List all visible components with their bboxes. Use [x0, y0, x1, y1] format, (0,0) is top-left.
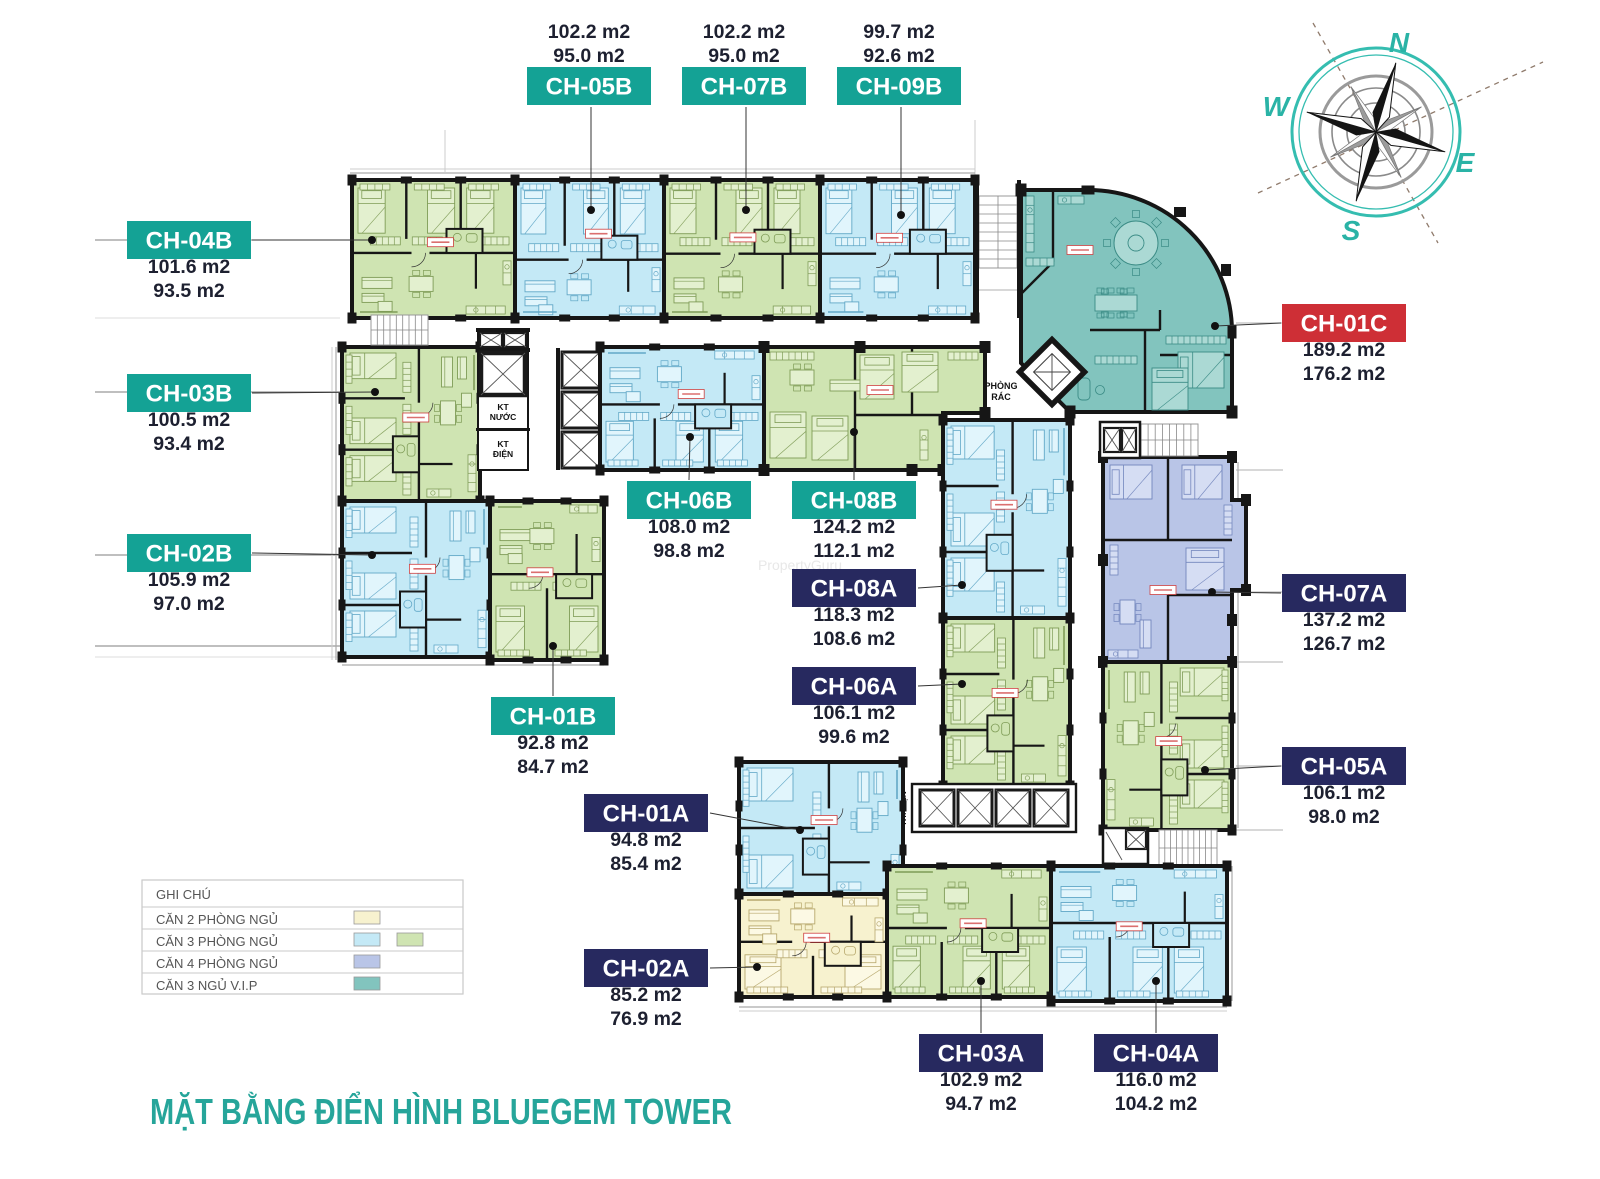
svg-text:CH-02A: CH-02A [603, 956, 690, 983]
svg-text:98.0 m2: 98.0 m2 [1308, 806, 1380, 828]
svg-text:101.6 m2: 101.6 m2 [148, 256, 231, 278]
svg-text:CH-01A: CH-01A [603, 801, 690, 828]
svg-text:CH-09B: CH-09B [856, 74, 943, 101]
svg-text:85.4 m2: 85.4 m2 [610, 853, 682, 875]
svg-text:CH-01B: CH-01B [510, 704, 597, 731]
svg-text:GHI CHÚ: GHI CHÚ [156, 887, 211, 902]
svg-text:NƯỚC: NƯỚC [490, 411, 517, 422]
svg-text:105.9 m2: 105.9 m2 [148, 569, 231, 591]
svg-text:RÁC: RÁC [991, 392, 1011, 402]
svg-text:CĂN 4 PHÒNG NGỦ: CĂN 4 PHÒNG NGỦ [156, 956, 278, 971]
svg-text:W: W [1263, 91, 1292, 122]
svg-text:ĐIỆN: ĐIỆN [493, 448, 513, 459]
svg-text:108.6 m2: 108.6 m2 [813, 628, 896, 650]
svg-text:95.0 m2: 95.0 m2 [553, 45, 625, 67]
svg-text:99.6 m2: 99.6 m2 [818, 726, 890, 748]
svg-text:99.7 m2: 99.7 m2 [863, 21, 935, 43]
svg-text:94.8 m2: 94.8 m2 [610, 829, 682, 851]
svg-text:CH-08A: CH-08A [811, 576, 898, 603]
svg-text:S: S [1342, 215, 1361, 246]
svg-text:KT: KT [497, 439, 509, 449]
svg-text:137.2 m2: 137.2 m2 [1303, 609, 1386, 631]
svg-text:KT: KT [497, 402, 509, 412]
svg-text:CH-08B: CH-08B [811, 488, 898, 515]
svg-text:76.9 m2: 76.9 m2 [610, 1008, 682, 1030]
svg-text:93.5 m2: 93.5 m2 [153, 280, 225, 302]
svg-text:102.9 m2: 102.9 m2 [940, 1069, 1023, 1091]
svg-text:106.1 m2: 106.1 m2 [813, 702, 896, 724]
svg-text:CH-01C: CH-01C [1301, 311, 1388, 338]
svg-text:98.8 m2: 98.8 m2 [653, 540, 725, 562]
svg-text:E: E [1456, 147, 1476, 178]
svg-text:124.2 m2: 124.2 m2 [813, 516, 896, 538]
svg-text:94.7 m2: 94.7 m2 [945, 1093, 1017, 1115]
svg-text:100.5 m2: 100.5 m2 [148, 409, 231, 431]
svg-text:102.2 m2: 102.2 m2 [703, 21, 786, 43]
svg-text:95.0 m2: 95.0 m2 [708, 45, 780, 67]
svg-text:MẶT BẰNG ĐIỂN HÌNH BLUEGEM TOW: MẶT BẰNG ĐIỂN HÌNH BLUEGEM TOWER [150, 1090, 732, 1132]
svg-text:CH-06A: CH-06A [811, 674, 898, 701]
svg-text:92.8 m2: 92.8 m2 [517, 732, 589, 754]
svg-text:CH-05A: CH-05A [1301, 754, 1388, 781]
svg-text:102.2 m2: 102.2 m2 [548, 21, 631, 43]
svg-text:CH-05B: CH-05B [546, 74, 633, 101]
svg-text:PHÒNG: PHÒNG [984, 380, 1017, 391]
svg-text:CH-02B: CH-02B [146, 541, 233, 568]
svg-text:93.4 m2: 93.4 m2 [153, 433, 225, 455]
svg-text:176.2 m2: 176.2 m2 [1303, 363, 1386, 385]
svg-text:112.1 m2: 112.1 m2 [813, 540, 894, 562]
svg-text:CH-07A: CH-07A [1301, 581, 1388, 608]
svg-text:126.7 m2: 126.7 m2 [1303, 633, 1386, 655]
svg-text:CH-04A: CH-04A [1113, 1041, 1200, 1068]
svg-text:84.7 m2: 84.7 m2 [517, 756, 589, 778]
svg-text:104.2 m2: 104.2 m2 [1115, 1093, 1198, 1115]
svg-text:189.2 m2: 189.2 m2 [1303, 339, 1386, 361]
svg-text:CH-03B: CH-03B [146, 381, 233, 408]
svg-text:106.1 m2: 106.1 m2 [1303, 782, 1386, 804]
svg-text:CĂN 2 PHÒNG NGỦ: CĂN 2 PHÒNG NGỦ [156, 912, 278, 927]
svg-text:CĂN 3 PHÒNG NGỦ: CĂN 3 PHÒNG NGỦ [156, 934, 278, 949]
svg-text:97.0 m2: 97.0 m2 [153, 593, 225, 615]
svg-text:CĂN 3 NGỦ V.I.P: CĂN 3 NGỦ V.I.P [156, 978, 257, 993]
svg-text:108.0 m2: 108.0 m2 [648, 516, 731, 538]
svg-text:CH-06B: CH-06B [646, 488, 733, 515]
svg-text:92.6 m2: 92.6 m2 [863, 45, 935, 67]
svg-text:N: N [1389, 27, 1410, 58]
svg-text:CH-07B: CH-07B [701, 74, 788, 101]
svg-text:116.0 m2: 116.0 m2 [1115, 1069, 1196, 1091]
svg-text:118.3 m2: 118.3 m2 [813, 604, 894, 626]
svg-text:85.2 m2: 85.2 m2 [610, 984, 682, 1006]
svg-text:CH-04B: CH-04B [146, 228, 233, 255]
svg-text:CH-03A: CH-03A [938, 1041, 1025, 1068]
